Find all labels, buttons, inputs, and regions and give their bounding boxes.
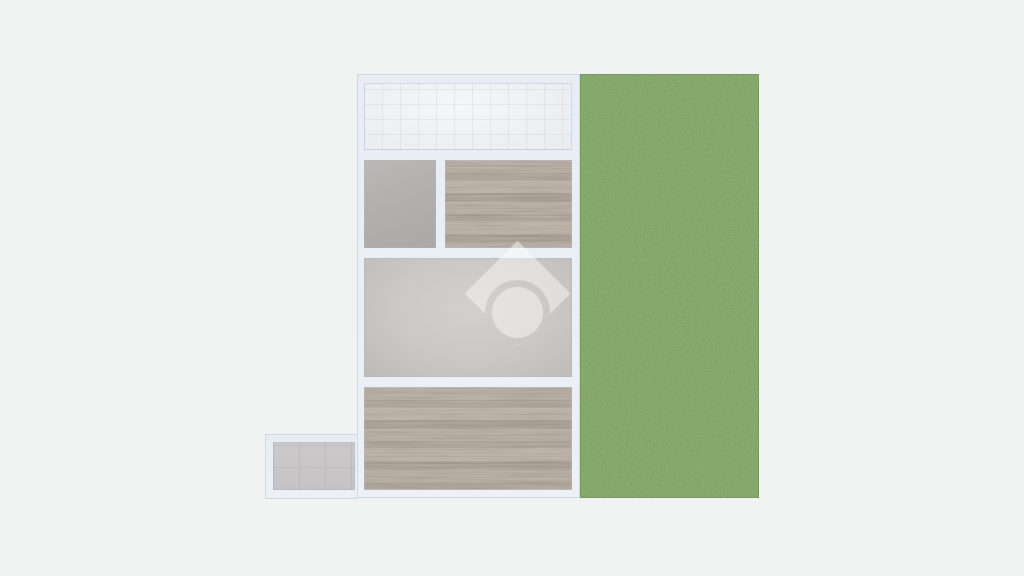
design-canvas (0, 0, 1024, 576)
room-wood-lower[interactable] (364, 387, 572, 490)
room-tile-top[interactable] (364, 83, 572, 150)
garden-grass[interactable] (580, 74, 759, 498)
plaster-texture (364, 258, 572, 377)
wood-texture (364, 387, 572, 490)
concrete-texture (364, 160, 436, 248)
tile-gray-texture (273, 442, 355, 490)
room-plaster-middle[interactable] (364, 258, 572, 377)
wood-texture (445, 160, 572, 248)
grass-texture (580, 74, 759, 498)
room-annex[interactable] (273, 442, 355, 490)
room-concrete[interactable] (364, 160, 436, 248)
room-wood-upper[interactable] (445, 160, 572, 248)
